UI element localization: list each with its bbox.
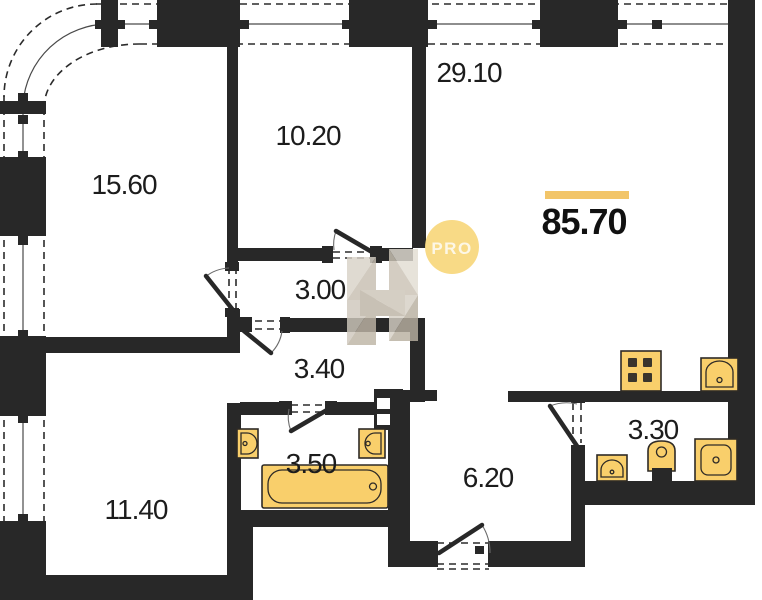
door-bathroom-3-50 <box>279 401 337 431</box>
room-area-label-3-00: 3.00 <box>295 274 346 306</box>
room-area-label-11-40: 11.40 <box>105 494 168 526</box>
entrance-door <box>437 525 490 569</box>
total-area-value: 85.70 <box>541 201 626 243</box>
room-area-label-3-50: 3.50 <box>286 448 337 480</box>
room-area-label-6-20: 6.20 <box>463 462 514 494</box>
room-area-label-3-40: 3.40 <box>294 353 345 385</box>
shower-icon <box>695 439 737 481</box>
room-area-label-29-10: 29.10 <box>436 57 501 89</box>
vent-shaft-icon <box>374 389 403 430</box>
floor-plan: PRO 15.60 10.20 29.10 3.00 3.40 3.50 11.… <box>0 0 762 600</box>
sink-icon <box>237 429 258 458</box>
total-area-accent-bar <box>545 191 629 199</box>
door-room-15-60 <box>205 262 239 317</box>
room-area-label-15-60: 15.60 <box>91 169 156 201</box>
room-area-label-10-20: 10.20 <box>275 120 340 152</box>
cooktop-icon <box>621 351 661 391</box>
watermark-pro-text: PRO <box>431 239 472 258</box>
toilet-icon <box>648 441 675 482</box>
toilet-icon <box>359 429 385 458</box>
door-corridor-3-40 <box>237 317 290 353</box>
watermark-pro-badge: PRO <box>425 220 479 274</box>
room-area-label-3-30: 3.30 <box>628 414 679 446</box>
small-sink-icon <box>597 455 627 481</box>
kitchen-sink-icon <box>701 358 738 391</box>
